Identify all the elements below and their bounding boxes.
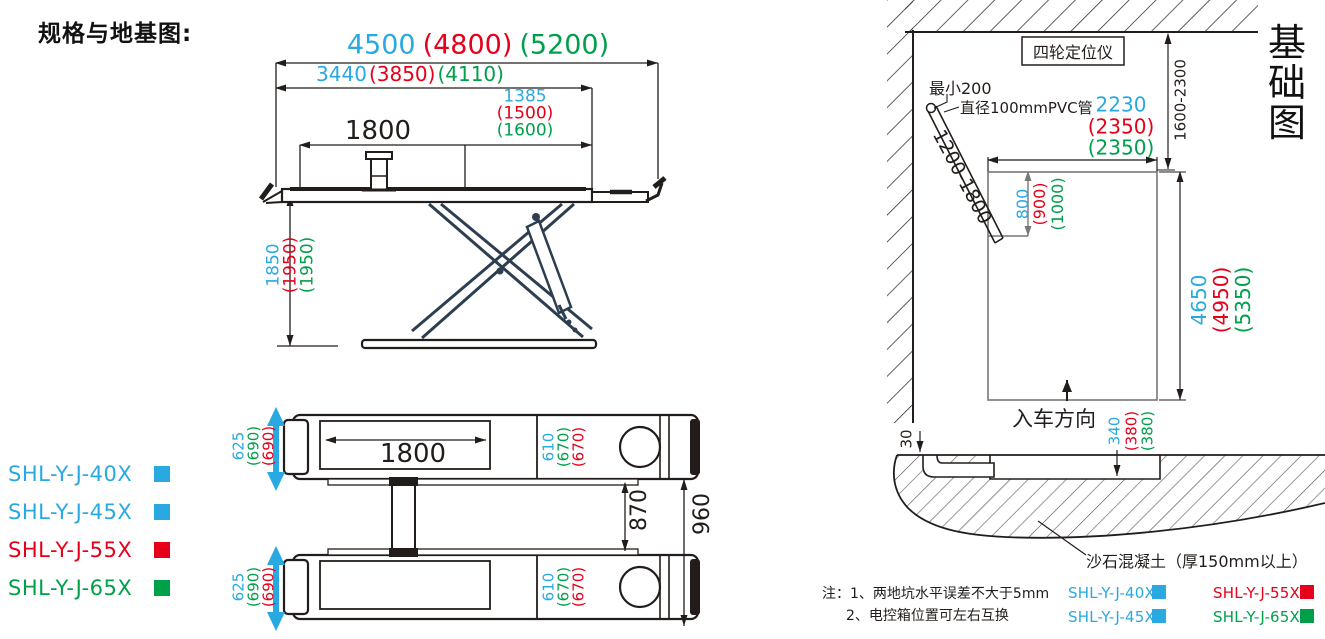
legend-item-65x: SHL-Y-J-65X [1213,608,1300,626]
note-line-2: 2、电控箱位置可左右互换 [846,605,1009,625]
dim-value-65: (1950) [300,237,317,294]
model-color-swatch-45x [154,504,170,520]
dim-value-40: 800 [1014,177,1031,230]
dim-value-55: (3850) [369,62,436,86]
concrete-label: 沙石混凝土（厚150mm以上） [1086,548,1308,572]
entry-direction-label: 入车方向 [1012,403,1096,433]
foundation-title-char3: 图 [1264,104,1310,144]
lift-base-frame [362,340,596,348]
dim-value-55: (690) [262,567,277,607]
pvc-pipe-label: 直径100mmPVC管 [960,97,1093,118]
model-list-item-65x: SHL-Y-J-65X [8,576,132,600]
legend-swatch-55x [1300,585,1314,599]
legend-swatch-40x [1152,585,1166,599]
dim-value-65: (380) [1139,411,1156,451]
scissor-mechanism [412,204,592,338]
dim-value-40: 2230 [1088,95,1155,117]
model-list-item-55x: SHL-Y-J-55X [8,538,132,562]
dim-value: 1800 [345,116,411,146]
dim-value-40: 4500 [347,30,416,61]
dim-value-55: (670) [572,567,587,607]
legend-swatch-45x [1152,609,1166,623]
spec-and-foundation-sheet: 规格与地基图: 4500 (4800) (5200) 3440 (3850) (… [0,0,1325,639]
plan-top-runway [284,415,700,479]
legend-item-55x: SHL-Y-J-55X [1213,584,1300,602]
foundation-title-char1: 基 [1264,24,1310,64]
dim-value-55: (4800) [423,30,513,61]
dim-value-55: (690) [262,426,277,466]
plan-center-base [328,477,638,557]
dim-value-65: (5350) [1232,267,1254,334]
plan-bottom-runway [284,555,700,619]
dim-value-65: (1000) [1049,177,1066,230]
dim-value-55: (4950) [1210,267,1232,334]
dim-value-65: (5200) [519,30,609,61]
dim-value: 1800 [380,439,446,469]
note-line-1: 注：1、两地坑水平误差不大于5mm [822,583,1049,603]
foundation-title-char2: 础 [1264,64,1310,104]
side-view-drawing [261,63,665,348]
dim-value-55: (380) [1123,411,1140,451]
min-clearance-label: 最小200 [929,75,992,99]
model-list-item-40x: SHL-Y-J-40X [8,462,132,486]
model-color-swatch-40x [154,466,170,482]
legend-item-40x: SHL-Y-J-40X [1068,584,1155,602]
dim-value-40: 4650 [1188,267,1210,334]
model-color-swatch-65x [154,580,170,596]
lift-platform-side [261,152,665,203]
model-color-swatch-55x [154,542,170,558]
dim-value-65: (2350) [1088,138,1155,160]
dim-value-40: 3440 [316,62,367,86]
dim-value-40: 340 [1106,411,1123,451]
legend-item-45x: SHL-Y-J-45X [1068,608,1155,626]
dim-value-65: (4110) [437,62,504,86]
side-view-dimension-lines [276,63,658,346]
dim-value-55: (2350) [1088,116,1155,138]
foundation-title: 基 础 图 [1264,24,1310,144]
model-list-item-45x: SHL-Y-J-45X [8,500,132,524]
dim-value-55: (900) [1031,177,1048,230]
page-title: 规格与地基图: [38,14,192,48]
dim-value-55: (670) [572,427,587,467]
legend-swatch-65x [1300,609,1314,623]
dim-value-65: (1600) [497,123,554,140]
